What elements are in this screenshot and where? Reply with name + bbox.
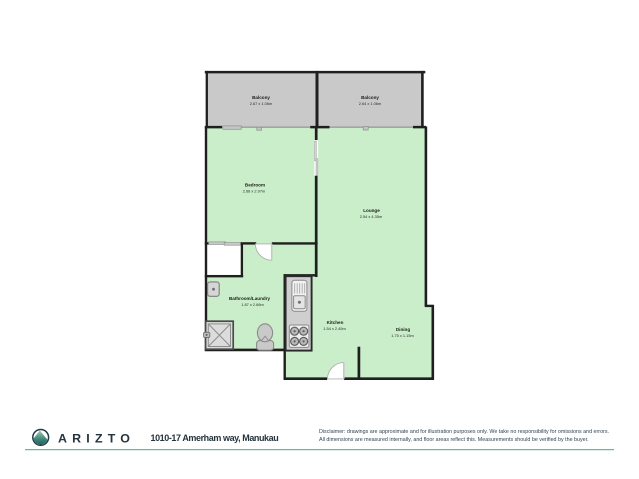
svg-text:2.67 x 1.06m: 2.67 x 1.06m: [250, 101, 273, 106]
svg-text:ARIZTO: ARIZTO: [58, 432, 135, 446]
svg-text:1.54 x 2.45m: 1.54 x 2.45m: [323, 326, 346, 331]
svg-text:Balcony: Balcony: [252, 95, 270, 100]
svg-text:All dimensions are measured in: All dimensions are measured internally, …: [319, 437, 589, 443]
svg-text:Disclaimer: drawings are appro: Disclaimer: drawings are approximate and…: [319, 429, 609, 435]
svg-text:Dining: Dining: [396, 327, 410, 332]
svg-text:2.68 x 2.97m: 2.68 x 2.97m: [243, 188, 266, 193]
svg-text:Balcony: Balcony: [361, 95, 379, 100]
svg-text:Lounge: Lounge: [363, 208, 380, 213]
svg-text:Kitchen: Kitchen: [327, 320, 344, 325]
svg-text:1.75 x 1.15m: 1.75 x 1.15m: [391, 333, 414, 338]
svg-text:Bathroom/Laundry: Bathroom/Laundry: [229, 296, 271, 301]
svg-text:1.87 x 2.66m: 1.87 x 2.66m: [241, 302, 264, 307]
svg-text:2.54 x 4.35m: 2.54 x 4.35m: [360, 214, 383, 219]
svg-text:Bedroom: Bedroom: [245, 183, 265, 188]
svg-text:2.64 x 1.06m: 2.64 x 1.06m: [359, 101, 382, 106]
svg-text:1010-17 Amerham way, Manukau: 1010-17 Amerham way, Manukau: [151, 433, 279, 443]
